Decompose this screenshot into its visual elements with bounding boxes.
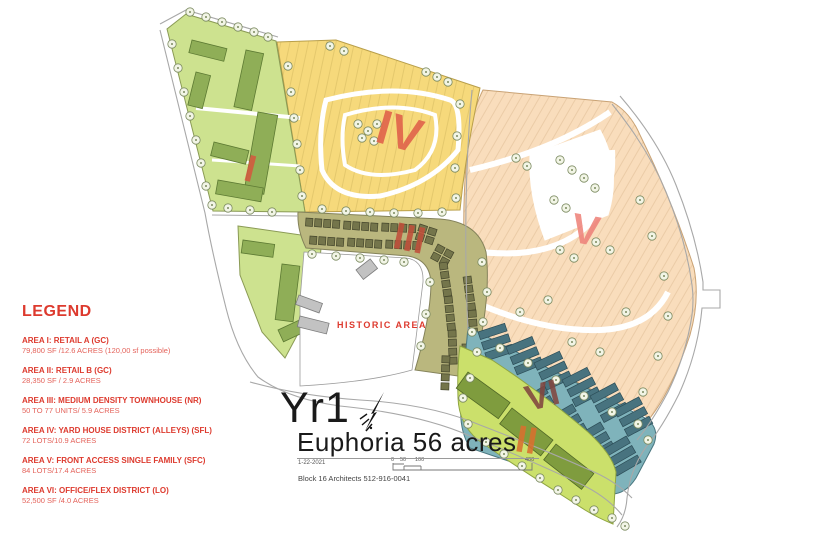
phase-title: Yr1: [280, 388, 570, 428]
legend: LEGEND AREA I: RETAIL A (GC) 79,800 SF /…: [22, 303, 257, 515]
legend-item-detail: 28,350 SF / 2.9 ACRES: [22, 376, 257, 386]
legend-item-detail: 84 LOTS/17.4 ACRES: [22, 466, 257, 476]
legend-item-name: AREA II: RETAIL B (GC): [22, 365, 257, 376]
legend-item-name: AREA IV: YARD HOUSE DISTRICT (ALLEYS) (S…: [22, 425, 257, 436]
architect-credit: Block 16 Architects 512-916-0041: [298, 474, 570, 483]
legend-item-name: AREA V: FRONT ACCESS SINGLE FAMILY (SFC): [22, 455, 257, 466]
legend-item-area-v: AREA V: FRONT ACCESS SINGLE FAMILY (SFC)…: [22, 455, 257, 476]
legend-item-area-ii: AREA II: RETAIL B (GC) 28,350 SF / 2.9 A…: [22, 365, 257, 386]
legend-title: LEGEND: [22, 303, 257, 321]
legend-item-detail: 72 LOTS/10.9 ACRES: [22, 436, 257, 446]
legend-item-detail: 50 TO 77 UNITS/ 5.9 ACRES: [22, 406, 257, 416]
legend-item-detail: 79,800 SF /12.6 ACRES (120,00 sf possibl…: [22, 346, 257, 356]
plan-date: 1-22-2021: [298, 460, 570, 466]
legend-item-area-i: AREA I: RETAIL A (GC) 79,800 SF /12.6 AC…: [22, 335, 257, 356]
historic-area-label: HISTORIC AREA: [337, 320, 427, 330]
legend-item-area-vi: AREA VI: OFFICE/FLEX DISTRICT (LO) 52,50…: [22, 485, 257, 506]
legend-item-name: AREA I: RETAIL A (GC): [22, 335, 257, 346]
legend-item-area-iii: AREA III: MEDIUM DENSITY TOWNHOUSE (NR) …: [22, 395, 257, 416]
site-plan-canvas: I IV III V VI II HISTORIC AREA 0 50 100 …: [0, 0, 828, 551]
legend-item-area-iv: AREA IV: YARD HOUSE DISTRICT (ALLEYS) (S…: [22, 425, 257, 446]
historic-area: [296, 252, 423, 386]
legend-item-name: AREA VI: OFFICE/FLEX DISTRICT (LO): [22, 485, 257, 496]
legend-item-name: AREA III: MEDIUM DENSITY TOWNHOUSE (NR): [22, 395, 257, 406]
legend-item-detail: 52,500 SF /4.0 ACRES: [22, 496, 257, 506]
title-block: Yr1 Euphoria 56 acres 1-22-2021 Block 16…: [280, 388, 570, 483]
project-title: Euphoria 56 acres: [297, 428, 539, 459]
